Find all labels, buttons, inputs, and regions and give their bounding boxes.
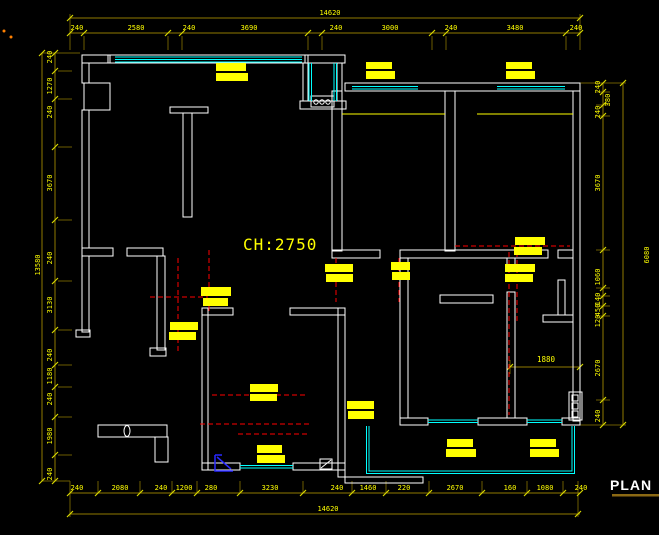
dim-labels-bottom: 240 2080 240 1200 280 3230 240 1460 220 …: [71, 484, 588, 513]
dim-label: 2670: [447, 484, 464, 492]
tick-set-right: [600, 80, 626, 428]
dim-label: 3670: [46, 175, 54, 192]
ceiling-height-note: CH:2750: [243, 235, 317, 254]
stove-burner-icon: [314, 100, 318, 104]
dim-label: 3000: [382, 24, 399, 32]
dim-label: 2080: [112, 484, 129, 492]
dim-label: 380: [604, 94, 612, 107]
dim-total-right: 6080: [643, 247, 651, 264]
accent-dot: [3, 30, 6, 33]
highlight-blocks: [169, 62, 559, 463]
stove-burner-icon: [326, 100, 330, 104]
dim-label: 240: [445, 24, 458, 32]
floor-plan-canvas: 240 2580 240 3690 240 3000 240 3480 240 …: [0, 0, 659, 535]
dim-label: 240: [71, 484, 84, 492]
stove-burner-icon: [320, 100, 324, 104]
dim-label: 240: [46, 468, 54, 481]
interior-dim-label: 1880: [537, 355, 556, 364]
dim-label: 3480: [507, 24, 524, 32]
dim-label: 240: [594, 106, 602, 119]
dim-label: 240: [183, 24, 196, 32]
dim-label: 240: [155, 484, 168, 492]
dim-label: 2580: [128, 24, 145, 32]
accent-dots: [3, 30, 13, 39]
dim-label: 450: [594, 304, 602, 317]
floor-drain-fixture: [320, 459, 332, 469]
dim-label: 1080: [537, 484, 554, 492]
accent-dot: [10, 36, 13, 39]
dim-label: 240: [46, 51, 54, 64]
dim-label: 2670: [594, 360, 602, 377]
dim-label: 240: [594, 81, 602, 94]
dim-label: 240: [570, 24, 583, 32]
dim-label: 3230: [262, 484, 279, 492]
dim-label: 280: [205, 484, 218, 492]
dim-label: 140: [594, 293, 602, 306]
dim-label: 1060: [594, 269, 602, 286]
dim-label: 1980: [46, 428, 54, 445]
dim-label: 1180: [46, 368, 54, 385]
dim-total-bottom: 14620: [317, 505, 338, 513]
dim-label: 240: [71, 24, 84, 32]
dim-label: 240: [46, 349, 54, 362]
dim-total-top: 14620: [319, 9, 340, 17]
plan-title-underline: [612, 494, 659, 497]
dim-label: 240: [331, 484, 344, 492]
dim-labels-top: 240 2580 240 3690 240 3000 240 3480 240 …: [71, 9, 583, 32]
drain-diagonal: [321, 460, 331, 468]
dim-label: 240: [594, 410, 602, 423]
dim-label: 1200: [176, 484, 193, 492]
dim-label: 240: [46, 393, 54, 406]
dim-label: 3670: [594, 175, 602, 192]
dim-label: 3690: [241, 24, 258, 32]
dim-label: 3130: [46, 297, 54, 314]
dim-label: 160: [504, 484, 517, 492]
dim-label: 1460: [360, 484, 377, 492]
dim-label: 1270: [46, 78, 54, 95]
dim-total-left: 13580: [34, 254, 42, 275]
dim-label: 240: [46, 252, 54, 265]
dim-label: 220: [398, 484, 411, 492]
cad-floor-plan-screenshot: 240 2580 240 3690 240 3000 240 3480 240 …: [0, 0, 659, 535]
dim-label: 120: [594, 315, 602, 328]
dim-label: 240: [46, 106, 54, 119]
dim-label: 240: [330, 24, 343, 32]
entry-step-divider: [124, 426, 130, 437]
dim-label: 240: [575, 484, 588, 492]
dim-labels-left: 240 1270 240 3670 240 3130 240 1180 240 …: [34, 51, 54, 481]
plan-title: PLAN: [610, 477, 652, 493]
